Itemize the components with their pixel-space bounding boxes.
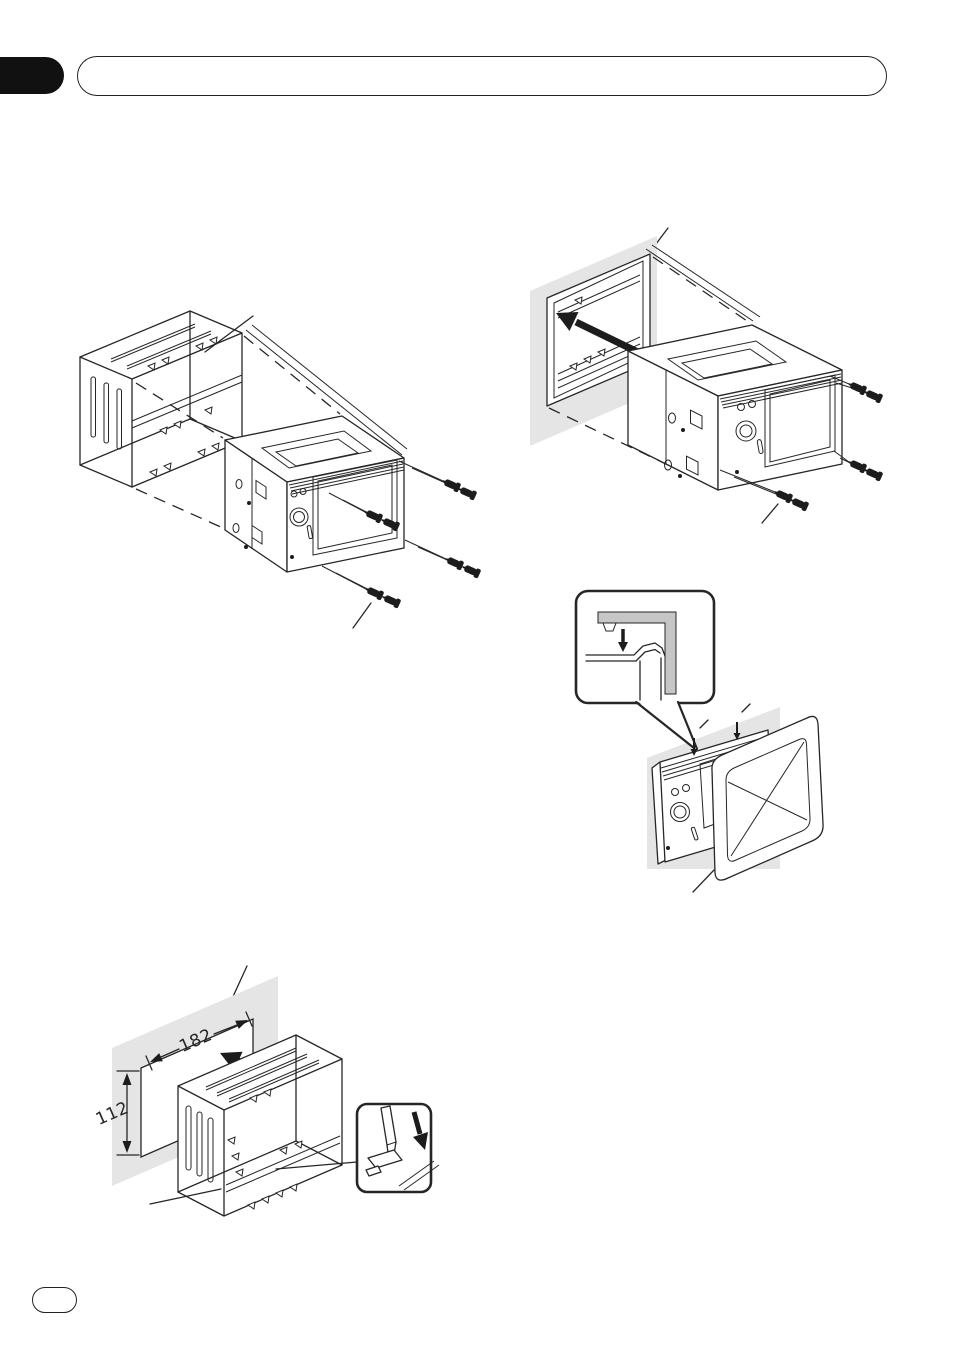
figure-attach-sleeve-to-unit [80, 311, 481, 628]
head-unit-drawing [628, 325, 842, 490]
screw-icon [847, 458, 867, 474]
screw-icon [381, 593, 401, 609]
leader-line-screws [762, 504, 778, 523]
screw-icon [457, 485, 477, 501]
screw-icon [364, 585, 384, 601]
screw-icon [461, 563, 481, 579]
figure-insert-unit-into-dash [530, 228, 883, 523]
leader-line-frame [693, 870, 714, 892]
screw-icon [441, 477, 461, 493]
screw-icon [863, 388, 883, 404]
head-unit-drawing [225, 416, 404, 572]
screw-icon [773, 488, 793, 504]
leader-line-screws [353, 603, 371, 628]
screw-icon [444, 555, 464, 571]
clip-detail-callout [576, 591, 714, 749]
manual-illustrations: 182 112 [0, 0, 954, 1351]
bend-tab-callout [357, 1104, 439, 1192]
figure-attach-trim-frame [576, 591, 823, 892]
figure-install-mounting-sleeve: 182 112 [93, 966, 439, 1216]
screw-icon [863, 466, 883, 482]
screw-icon [789, 496, 809, 512]
leader-line-sleeve [205, 316, 253, 352]
